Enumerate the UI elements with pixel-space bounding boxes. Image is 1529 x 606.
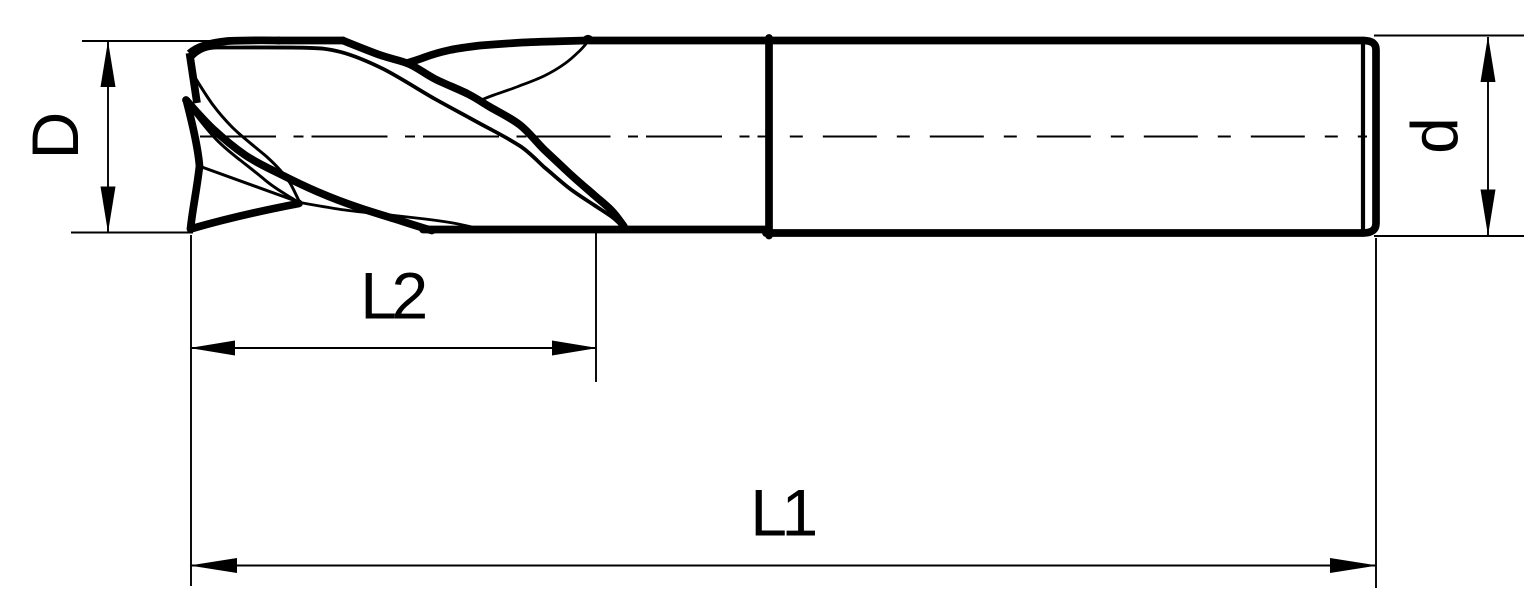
svg-text:d: d [1398, 117, 1472, 154]
svg-text:D: D [18, 112, 92, 160]
svg-text:L2: L2 [360, 259, 425, 333]
svg-text:L1: L1 [750, 476, 815, 550]
